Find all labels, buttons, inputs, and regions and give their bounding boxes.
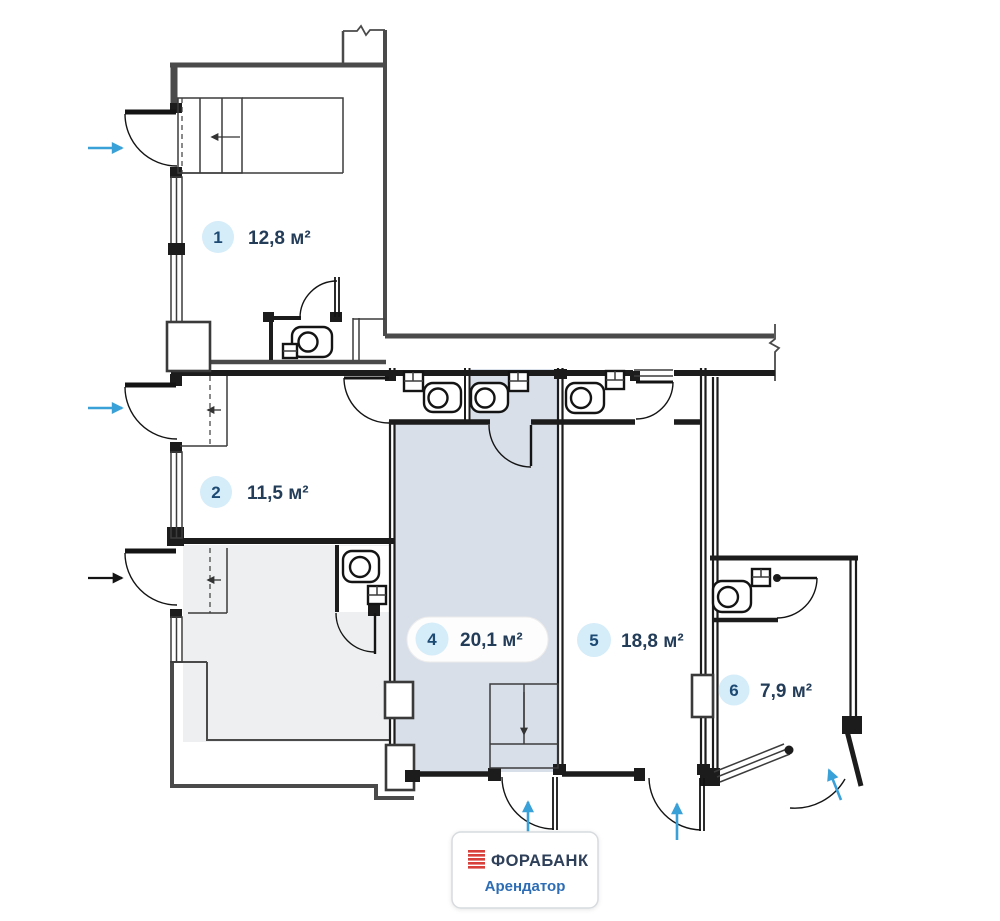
room-5-label: 5 18,8 м² [577,623,684,657]
room-number: 4 [427,630,437,649]
toilet-icon [713,581,751,612]
room-4-label: 4 20,1 м² [407,617,548,662]
floor-plan-page: 1 12,8 м² 2 11,5 м² 4 20,1 м² 5 18,8 м² … [0,0,1000,921]
room-4-floor [395,369,557,772]
toilet-icon [424,383,461,412]
tenant-badge-box [452,832,598,908]
wall-break-top [343,26,385,35]
room-number: 1 [213,228,222,247]
sink-icon [368,586,386,604]
pier [692,675,713,717]
room-area: 12,8 м² [248,228,311,249]
door-arc [636,382,673,419]
room-area: 11,5 м² [247,483,309,504]
room-2-label: 2 11,5 м² [200,476,309,508]
sink-icon [752,569,770,586]
pier [385,682,413,718]
corner-block [842,716,862,734]
room-area: 7,9 м² [760,681,812,702]
door-arc [344,378,389,423]
sink-icon [606,371,624,389]
angled-door-jamb [846,727,861,786]
entry-threshold [180,376,227,446]
bank-name: ФОРАБАНК [491,852,589,870]
sink-icon [283,344,297,358]
window-icon [171,617,182,662]
angled-window-icon [714,744,790,782]
room-area: 18,8 м² [621,631,684,652]
room-area: 20,1 м² [460,630,523,651]
room-1-label: 1 12,8 м² [202,221,311,253]
room-number: 6 [729,681,738,700]
room-number: 5 [589,631,598,650]
window-icon [171,452,182,538]
toilet-icon [566,383,604,413]
pier [386,745,414,790]
room-6-label: 6 7,9 м² [719,675,813,706]
door-arc [300,277,339,318]
tenant-label: Арендатор [485,878,566,895]
sink-icon [509,372,528,391]
floor-plan: 1 12,8 м² 2 11,5 м² 4 20,1 м² 5 18,8 м² … [0,0,1000,921]
door-arc [785,746,846,809]
door-arc [125,112,177,166]
tenant-badge: ФОРАБАНК Арендатор [452,832,598,908]
door-arc [125,551,177,605]
door-arc [773,574,817,618]
staircase-icon [178,98,343,174]
door-arc [125,385,177,439]
window-pier [167,322,210,371]
window-icon [168,177,185,322]
sink-icon [404,372,423,391]
door-arc [502,777,557,830]
toilet-icon [343,551,379,582]
toilet-icon [471,383,508,412]
room-number: 2 [211,483,220,502]
